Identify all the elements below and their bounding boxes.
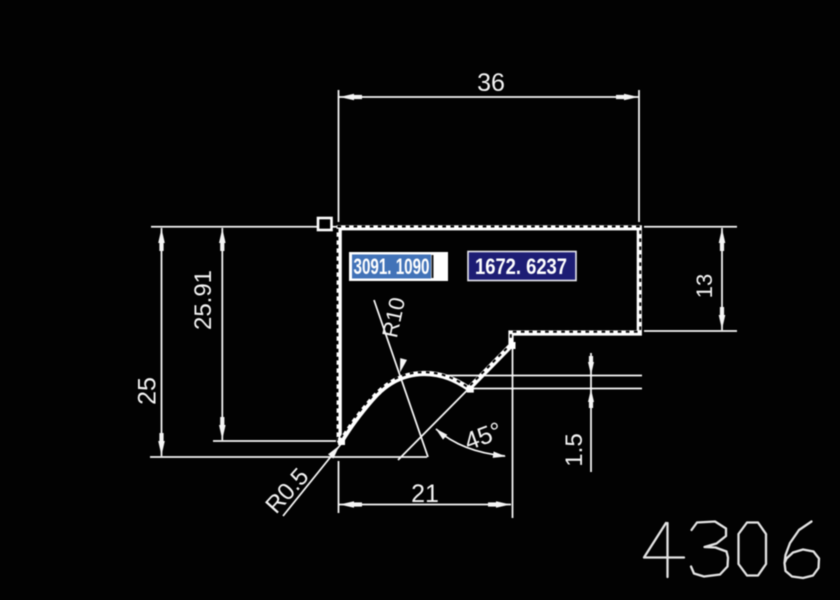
svg-text:36: 36	[477, 69, 505, 97]
svg-text:25.91: 25.91	[190, 270, 217, 330]
svg-text:13: 13	[692, 274, 717, 298]
svg-text:3091. 1090: 3091. 1090	[354, 254, 430, 279]
svg-text:1672. 6237: 1672. 6237	[475, 254, 567, 279]
svg-text:1.5: 1.5	[561, 433, 588, 466]
svg-text:25: 25	[134, 377, 162, 405]
svg-text:21: 21	[411, 480, 439, 508]
